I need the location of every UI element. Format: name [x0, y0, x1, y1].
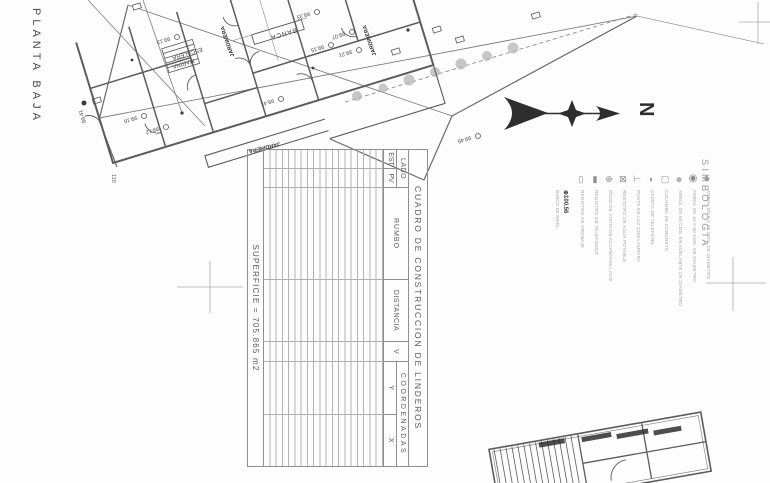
legend-entry: ⊕ POZO DE VISITA DE ALCANTARILLADO	[602, 171, 616, 316]
legend-entry: ● ARBOL DE 5 A 10 CMS. DE DIAMETRO	[700, 171, 714, 316]
legend-entry-text: POZO DE VISITA DE ALCANTARILLADO	[608, 190, 613, 282]
column-divider	[264, 361, 383, 362]
column-lado: LADO EST PV	[384, 150, 408, 188]
legend-entry-text: REGISTRO DE TELEFONOS	[594, 190, 599, 255]
pv-header: PV	[384, 169, 396, 187]
rumbo-header: RUMBO	[384, 188, 408, 280]
column-divider	[264, 414, 383, 415]
north-label: N	[635, 102, 657, 116]
elevation-value: 99.45	[457, 134, 472, 144]
distancia-header: DISTANCIA	[384, 280, 408, 342]
elevation-value: 99.41	[78, 109, 88, 124]
column-divider	[264, 341, 383, 342]
legend-entry-text: REGISTRO DE AGUA POTABLE	[622, 190, 627, 262]
north-arrow-star	[558, 100, 586, 127]
registration-cross	[739, 2, 770, 44]
elevation-value: 99.41	[260, 97, 275, 107]
lot-number-label: 118	[110, 174, 116, 183]
manhole-icon: ⊕	[602, 171, 616, 187]
linderos-table-empty-rows	[264, 150, 383, 466]
water-box-icon: ⊠	[616, 171, 630, 187]
legend-entry: ● ARBOL DE 50 CMS. EN ADELANTE DE DIAMET…	[672, 171, 686, 316]
simbologia-legend: SIMBOLOGIA ● ARBOL DE 5 A 10 CMS. DE DIA…	[540, 149, 720, 319]
legend-entry: ◉ ARBOL DE 10 A 50 CMS. DE DIAMETRO	[686, 171, 700, 316]
legend-entry: ⊠ REGISTRO DE AGUA POTABLE	[616, 171, 630, 316]
legend-entry: ▢ COLUMNA DE CONCRETO	[658, 171, 672, 316]
legend-entry: ▯ REGISTRO DE DRENAJE	[574, 171, 588, 316]
benchmark-label: BANCO DE NIVEL	[555, 190, 560, 229]
tree-medium-icon: ◉	[686, 171, 700, 187]
drain-register-icon: ▯	[574, 171, 588, 187]
legend-entry-text: POSTE DE LUZ CON LAMPARA	[636, 190, 641, 262]
light-pole-icon: ⊢	[630, 171, 644, 187]
plan-fragment	[489, 412, 711, 483]
legend-entry-text: ARBOL DE 10 A 50 CMS. DE DIAMETRO	[692, 190, 697, 282]
legend-entry-text: CASETA DE TELEFONO	[650, 190, 655, 245]
legend-entry: ◗ CASETA DE TELEFONO	[644, 171, 658, 316]
tree-large-icon: ●	[672, 171, 686, 187]
lado-header: LADO	[396, 150, 408, 187]
benchmark-value: ⊕100.56	[562, 190, 569, 213]
north-arrow: N	[504, 97, 657, 130]
legend-entry: ⊢ POSTE DE LUZ CON LAMPARA	[630, 171, 644, 316]
registration-cross	[177, 261, 243, 313]
phone-register-icon: ▮	[588, 171, 602, 187]
column-coordenadas: COORDENADAS Y X	[384, 362, 408, 466]
elevation-value: 99.16	[123, 114, 138, 124]
column-divider	[264, 279, 383, 280]
jardinera-label-right: JARDINERA	[362, 24, 378, 56]
linderos-table: CUADRO DE CONSTRUCCION DE LINDEROS LADO …	[247, 149, 428, 467]
linderos-table-title: CUADRO DE CONSTRUCCION DE LINDEROS	[408, 150, 427, 466]
elevation-value: 99.13	[156, 35, 171, 45]
legend-entry: ▮ REGISTRO DE TELEFONOS	[588, 171, 602, 316]
scanned-plan-sheet: BANCA ESCALERA MARINA JARDINERA JARDINER…	[0, 0, 770, 483]
est-header: EST	[384, 150, 396, 169]
coordenadas-header: COORDENADAS	[396, 362, 408, 466]
legend-entry-text: ARBOL DE 5 A 10 CMS. DE DIAMETRO	[706, 190, 711, 279]
legend-entry-text: ARBOL DE 50 CMS. EN ADELANTE DE DIAMETRO	[678, 190, 683, 306]
y-header: Y	[384, 362, 396, 415]
legend-entry-text: COLUMNA DE CONCRETO	[664, 190, 669, 252]
linderos-table-header: LADO EST PV RUMBO DISTANCIA V COORDENADA…	[383, 150, 408, 466]
simbologia-entries: ● ARBOL DE 5 A 10 CMS. DE DIAMETRO ◉ ARB…	[554, 171, 714, 316]
elevation-value: 99.07	[331, 30, 346, 40]
superficie-label: SUPERFICIE = 705.865 m2	[249, 150, 264, 466]
column-divider	[264, 187, 383, 188]
spot-elevations: 99.33 99.07 99.21 99.15 99.13 99.12 99.1…	[78, 10, 481, 144]
v-header: V	[384, 342, 408, 362]
tree-small-icon: ●	[700, 171, 714, 187]
elevation-value: 99.21	[338, 48, 353, 58]
north-arrow-feather	[504, 97, 548, 130]
sheet-title: PLANTA BAJA	[30, 8, 42, 124]
legend-benchmark-note: ⊕100.56 BANCO DE NIVEL	[554, 171, 574, 316]
x-header: X	[384, 415, 396, 467]
elevation-value: 99.33	[296, 10, 311, 20]
column-divider	[264, 168, 383, 169]
phone-booth-icon: ◗	[644, 171, 658, 187]
concrete-column-icon: ▢	[658, 171, 672, 187]
legend-entry-text: REGISTRO DE DRENAJE	[580, 190, 585, 248]
